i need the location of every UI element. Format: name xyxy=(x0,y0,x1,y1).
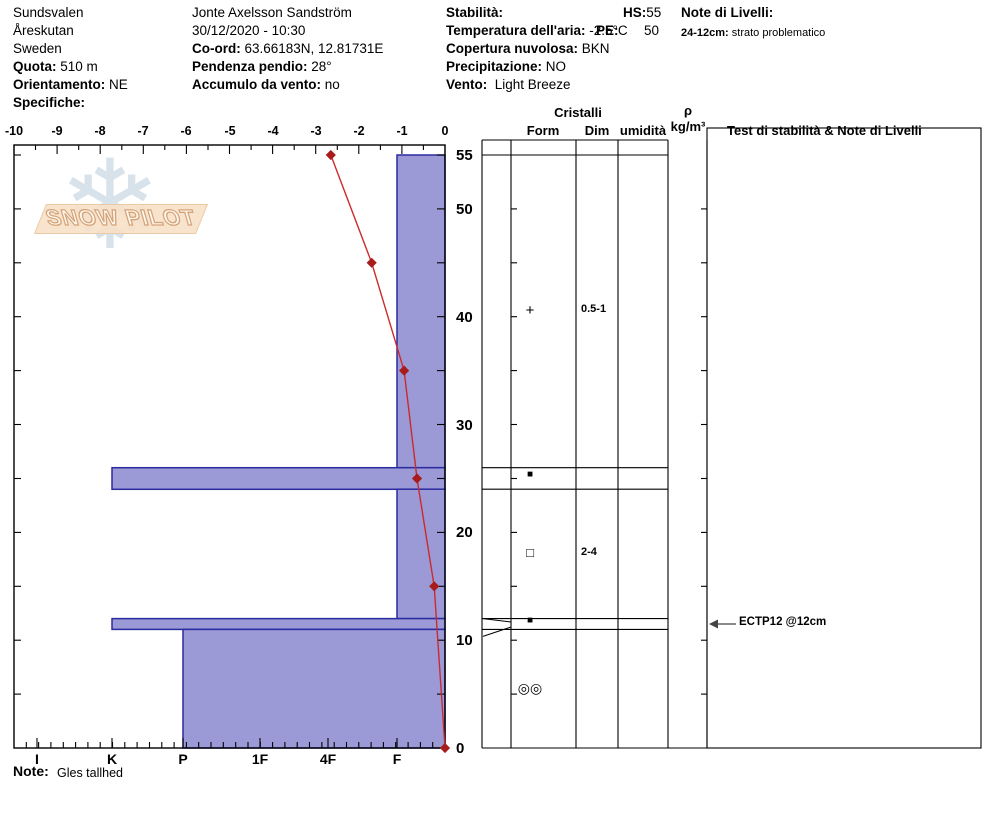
temperature-data-point xyxy=(326,150,336,160)
hardness-axis-tick-label: K xyxy=(95,751,129,767)
temp-axis-tick-label: -3 xyxy=(299,124,333,138)
snowpilot-profile-page: Sundsvalen Åreskutan Sweden Quota: 510 m… xyxy=(0,0,994,840)
height-axis-tick-label: 30 xyxy=(456,417,473,434)
height-axis-tick-label: 10 xyxy=(456,632,473,649)
humidity-column-header: umidità xyxy=(618,123,668,138)
grain-size-value: 0.5-1 xyxy=(581,303,606,315)
dim-column-header: Dim xyxy=(576,123,618,138)
temp-axis-tick-label: -7 xyxy=(126,124,160,138)
stability-test-annotation: ECTP12 @12cm xyxy=(739,616,826,628)
test-notes-box xyxy=(707,128,981,748)
grain-form-symbol: ■ xyxy=(510,469,550,480)
temp-axis-tick-label: -4 xyxy=(256,124,290,138)
height-axis-tick-label: 0 xyxy=(456,740,464,757)
temp-axis-tick-label: -8 xyxy=(83,124,117,138)
temp-axis-tick-label: -2 xyxy=(342,124,376,138)
height-axis-tick-label: 50 xyxy=(456,201,473,218)
hardness-axis-tick-label: F xyxy=(380,751,414,767)
height-axis-tick-label: 55 xyxy=(456,147,473,164)
grain-size-value: 2-4 xyxy=(581,546,597,558)
grain-form-symbol: ■ xyxy=(510,615,550,626)
temperature-data-point xyxy=(367,258,377,268)
temp-axis-tick-label: 0 xyxy=(428,124,462,138)
table-grid xyxy=(482,140,981,748)
hardness-axis-tick-label: 1F xyxy=(243,751,277,767)
hardness-bars xyxy=(112,155,445,748)
temp-axis-tick-label: -10 xyxy=(0,124,31,138)
form-column-header: Form xyxy=(511,123,575,138)
density-unit-header: kg/m³ xyxy=(664,119,712,134)
height-axis-tick-label: 20 xyxy=(456,524,473,541)
hardness-axis-tick-label: P xyxy=(166,751,200,767)
grain-form-symbol: ◎◎ xyxy=(510,680,550,697)
cristalli-header: Cristalli xyxy=(538,105,618,120)
temp-axis-tick-label: -6 xyxy=(169,124,203,138)
grain-form-symbol: □ xyxy=(510,545,550,560)
stability-tests-header: Test di stabilità & Note di Livelli xyxy=(727,123,922,138)
density-symbol-header: ρ xyxy=(668,103,708,118)
temp-axis-tick-label: -9 xyxy=(40,124,74,138)
temp-axis-tick-label: -1 xyxy=(385,124,419,138)
temp-axis-tick-label: -5 xyxy=(213,124,247,138)
hardness-axis-tick-label: 4F xyxy=(311,751,345,767)
hardness-axis-tick-label: I xyxy=(20,751,54,767)
grain-form-symbol: + xyxy=(510,302,550,319)
height-axis-tick-label: 40 xyxy=(456,309,473,326)
pit-note-text: Gles tallhed xyxy=(57,766,123,780)
